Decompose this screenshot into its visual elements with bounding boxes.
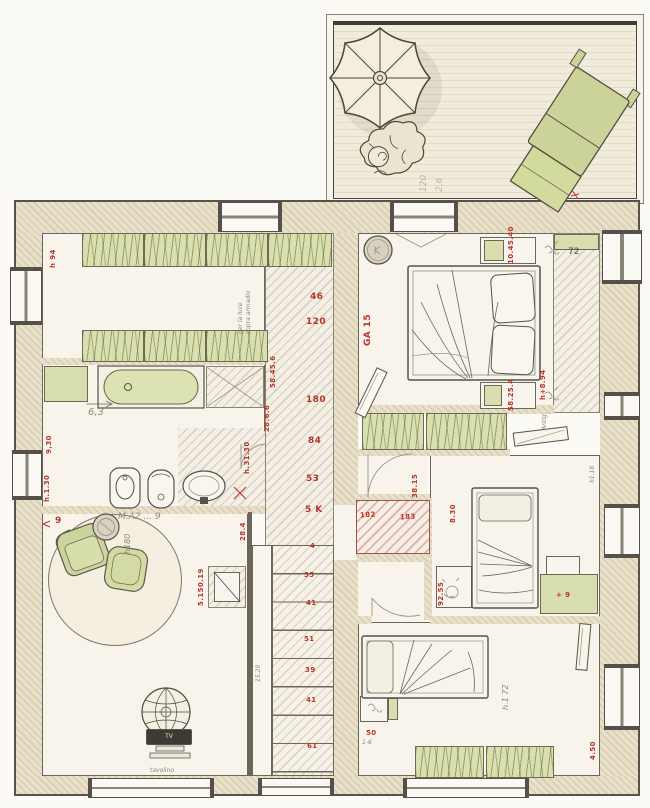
- dim: 9,30: [46, 424, 53, 454]
- dim-bath-width: 6,3: [88, 408, 104, 418]
- wall-top: [14, 200, 640, 233]
- nightstand-lamp: [484, 240, 504, 261]
- pencil-note: h180: [124, 528, 132, 554]
- window-right-2: [604, 392, 640, 420]
- dim: 38.15: [412, 470, 419, 498]
- staircase: [272, 545, 334, 776]
- pencil-note: sopra armadio: [246, 288, 252, 334]
- pencil-note: tavolino: [150, 768, 174, 774]
- wall-hall-north: [358, 449, 510, 456]
- window-bottom-1: [88, 778, 214, 798]
- step-dim: 41: [306, 600, 317, 607]
- pencil-note: h1.18: [590, 455, 596, 483]
- nightstand-lamp: [484, 385, 502, 406]
- dim: 4.50: [590, 732, 597, 760]
- dim: 10.45.40: [508, 236, 515, 264]
- dim: 92.55: [438, 578, 445, 606]
- pencil-note: Antig.: [542, 404, 548, 430]
- dim-closet-height: h 94: [50, 238, 57, 268]
- dim: 8.30: [450, 497, 457, 523]
- window-top-1: [218, 202, 282, 232]
- dim: 5 K: [305, 506, 323, 515]
- red-hatched-niche: [356, 500, 430, 554]
- wall-bedroom2-3: [430, 616, 600, 624]
- wardrobe-unit: [415, 746, 484, 778]
- spine-opening: [334, 505, 358, 560]
- dim: 28.6.6: [264, 386, 271, 432]
- window-bottom-2: [258, 778, 334, 796]
- dim: 53: [306, 475, 319, 484]
- dim: 5.150.19: [198, 568, 205, 606]
- pencil-note: 15.29: [256, 652, 262, 682]
- step-dim: 41: [306, 697, 317, 704]
- terrace-dim-a: 120: [420, 158, 429, 192]
- dim: + 9: [556, 592, 570, 599]
- pencil-note: h.1 72: [502, 676, 510, 710]
- bedroom1-side-strip: [553, 233, 600, 413]
- step-dim: 4: [310, 543, 315, 550]
- step-dim: 39: [305, 667, 316, 674]
- wardrobe-unit: [144, 233, 206, 267]
- wardrobe-unit: [426, 413, 507, 450]
- window-right-3: [604, 504, 640, 558]
- pencil-note: per la luce: [238, 288, 244, 334]
- wardrobe-unit: [206, 330, 268, 362]
- stair-stringer: [252, 545, 272, 776]
- dim: 58.25.4: [508, 383, 515, 411]
- wardrobe-unit: [268, 233, 332, 267]
- window-left-1: [10, 267, 42, 325]
- strip-width-label: 72: [568, 248, 579, 257]
- shower: [206, 366, 264, 408]
- dim: 28.4: [240, 515, 247, 541]
- room-code: GA 15: [364, 312, 373, 346]
- dim: 84: [308, 437, 321, 446]
- floor-plan-canvas: { "terrace": {"dim_a": "120", "dim_b": "…: [0, 0, 650, 808]
- pencil-note: M.A2 ... 9: [118, 513, 161, 522]
- niche-wall-bottom: [356, 554, 430, 562]
- dim: 58.45.6: [270, 340, 277, 388]
- wardrobe-unit: [82, 330, 144, 362]
- pencil-note: 1-6: [362, 740, 372, 746]
- dim: 46: [310, 293, 323, 302]
- tv-unit: TV: [146, 729, 192, 745]
- wardrobe-unit: [486, 746, 554, 778]
- dim: 182: [360, 511, 376, 519]
- fireplace-inner: [214, 572, 240, 602]
- terrace-dim-b: 2,6: [436, 158, 445, 192]
- wardrobe-unit: [82, 233, 144, 267]
- dim: h.1.30: [44, 470, 51, 502]
- dim: 50: [366, 730, 377, 737]
- step-dim: 51: [304, 636, 315, 643]
- dim: 183: [400, 513, 416, 521]
- window-terrace-door: [390, 202, 458, 232]
- dim: h+8.94: [540, 368, 547, 400]
- terrace-deck: [333, 21, 637, 199]
- dim: 9: [55, 517, 62, 526]
- bath-counter: [178, 428, 265, 507]
- wardrobe-unit: [206, 233, 268, 267]
- window-right-1: [602, 230, 642, 284]
- window-bottom-3: [403, 778, 529, 798]
- dim: 120: [306, 318, 326, 327]
- step-dim: 61: [307, 743, 318, 750]
- wall-stub-bedroom3: [358, 616, 372, 624]
- dim: 180: [306, 396, 326, 405]
- nightstand: [360, 696, 388, 722]
- wardrobe-unit: [144, 330, 206, 362]
- nightstand-lamp: [388, 698, 398, 720]
- window-right-4: [604, 664, 640, 730]
- round-rug: [48, 514, 182, 646]
- nightstand: [546, 556, 580, 576]
- wardrobe-unit: [362, 413, 424, 450]
- window-left-2: [12, 450, 42, 500]
- step-dim: 35: [304, 572, 315, 579]
- bath-cabinet: [44, 366, 88, 402]
- dim: h.31.30: [244, 440, 251, 474]
